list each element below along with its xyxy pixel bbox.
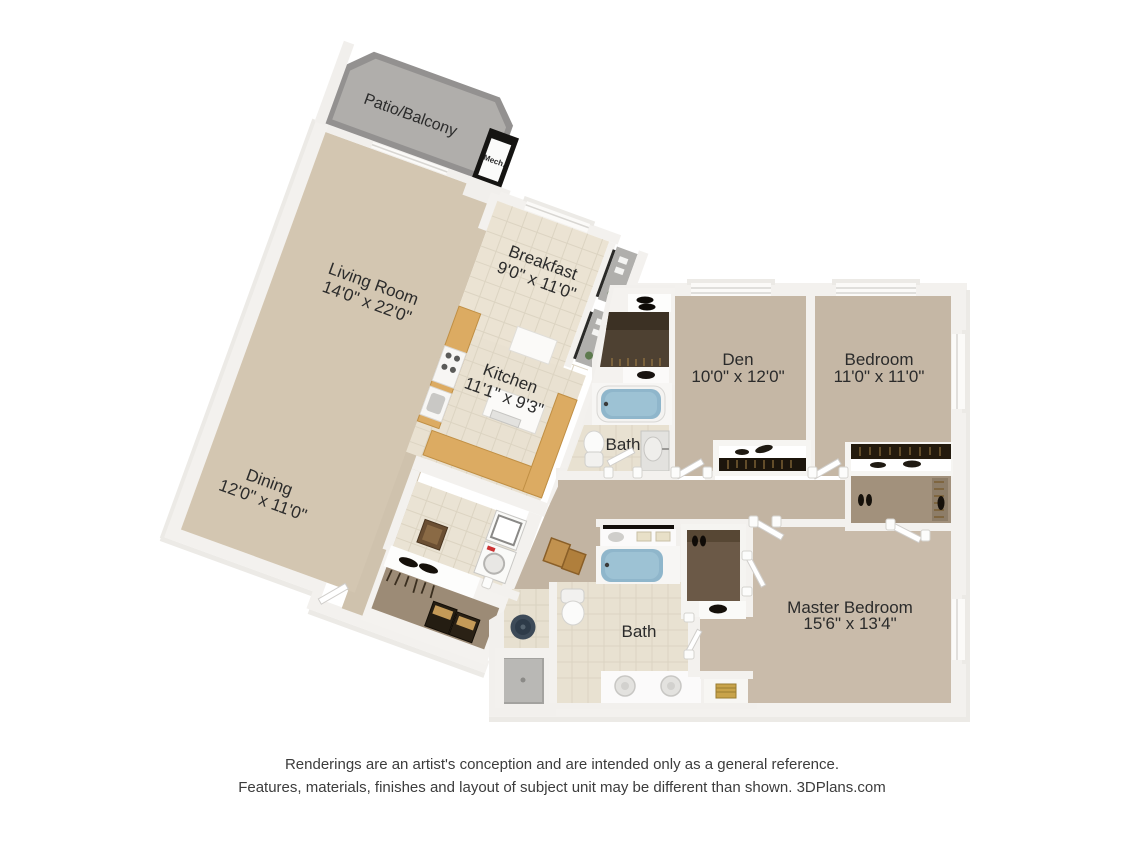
svg-text:Bath: Bath xyxy=(606,435,641,454)
svg-text:Renderings are an artist's con: Renderings are an artist's conception an… xyxy=(285,756,839,773)
svg-text:15'6" x 13'4": 15'6" x 13'4" xyxy=(803,614,896,633)
svg-text:11'0" x 11'0": 11'0" x 11'0" xyxy=(834,367,925,386)
svg-text:Features, materials, finishes: Features, materials, finishes and layout… xyxy=(238,779,886,796)
svg-text:Bath: Bath xyxy=(622,622,657,641)
svg-text:10'0" x 12'0": 10'0" x 12'0" xyxy=(691,367,784,386)
